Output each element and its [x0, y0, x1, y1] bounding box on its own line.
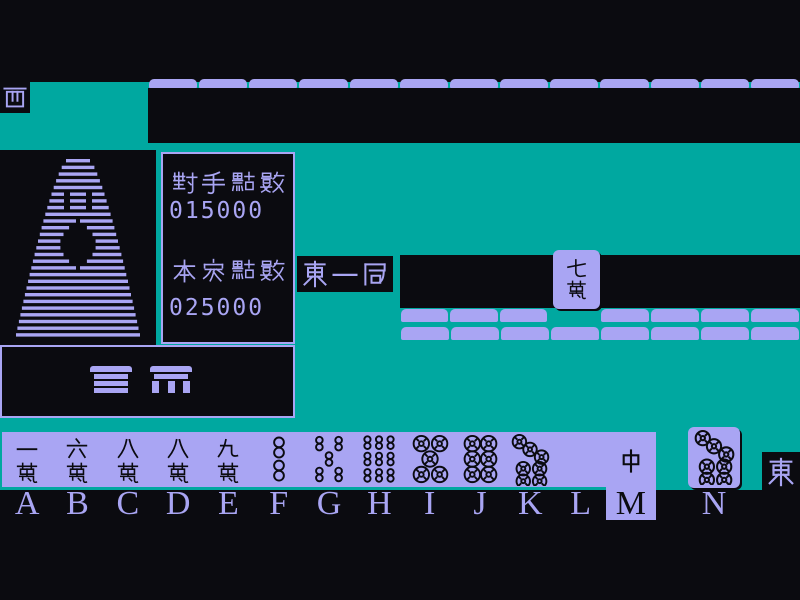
hand-tile-K-7p[interactable]: [505, 432, 555, 487]
hand-tile-C-8m[interactable]: [103, 432, 153, 487]
wall-tile-top: [450, 309, 497, 322]
hand-slot-key-F[interactable]: F: [254, 487, 304, 520]
wall-row-1-right: [600, 309, 800, 322]
game-screen: 015000 025000 ABCDEFGHIJKLM N: [0, 0, 800, 600]
stick-tray-panel: [0, 345, 295, 418]
opponent-tile-back: [148, 79, 198, 143]
wall-tile-top: [751, 327, 799, 340]
opponent-tile-back: [650, 79, 700, 143]
hand-tile-G-5s[interactable]: [304, 432, 354, 487]
opponent-tile-back: [349, 79, 399, 143]
tile-bench-icon: [150, 366, 192, 393]
hand-tile-F-2s[interactable]: [254, 432, 304, 487]
hand-slot-key-G[interactable]: G: [304, 487, 354, 520]
opponent-hand-row: [148, 79, 800, 143]
opponent-tile-back: [750, 79, 800, 143]
score-panel: 015000 025000: [161, 152, 295, 344]
wall-row-2: [400, 327, 800, 340]
opponent-tile-back: [499, 79, 549, 143]
tile-stack-icon: [90, 366, 132, 393]
hand-slot-key-C[interactable]: C: [103, 487, 153, 520]
wall-tile-top: [651, 327, 699, 340]
drawn-tile[interactable]: [688, 427, 740, 488]
player-hand-strip: [2, 432, 656, 487]
opponent-claimed-tile-7man: [553, 250, 600, 309]
hand-key-row: ABCDEFGHIJKLM: [2, 487, 656, 520]
west-wind-glyph: [2, 84, 28, 111]
hand-tile-I-5p[interactable]: [405, 432, 455, 487]
hand-slot-key-H[interactable]: H: [354, 487, 404, 520]
hand-tile-E-9m[interactable]: [203, 432, 253, 487]
tile-pagoda-panel: [0, 150, 156, 345]
opponent-tile-back: [599, 79, 649, 143]
wall-tile-top: [551, 327, 599, 340]
hand-slot-key-I[interactable]: I: [405, 487, 455, 520]
round-indicator: [297, 256, 393, 292]
hand-slot-key-J[interactable]: J: [455, 487, 505, 520]
tile-pagoda-image: [13, 156, 143, 342]
opponent-wind-indicator: [0, 82, 30, 113]
hand-slot-key-K[interactable]: K: [505, 487, 555, 520]
opponent-score-value: 015000: [169, 198, 264, 224]
player-wind-indicator: [762, 452, 800, 492]
player-score-value: 025000: [169, 295, 264, 321]
hand-slot-key-M[interactable]: M: [606, 487, 656, 520]
opponent-tile-back: [399, 79, 449, 143]
opponent-score-label: [171, 170, 285, 196]
hand-tile-D-8m[interactable]: [153, 432, 203, 487]
opponent-tile-back: [449, 79, 499, 143]
wall-tile-top: [401, 309, 448, 322]
hand-slot-key-A[interactable]: A: [2, 487, 52, 520]
wall-tile-top: [601, 327, 649, 340]
opponent-tile-back: [700, 79, 750, 143]
hand-slot-key-B[interactable]: B: [52, 487, 102, 520]
hand-tile-L-haku[interactable]: [555, 432, 605, 487]
wall-tile-top: [751, 309, 799, 322]
opponent-discard-strip: [400, 255, 800, 308]
wall-row-1-left: [400, 309, 548, 322]
hand-slot-key-E[interactable]: E: [203, 487, 253, 520]
wall-tile-top: [651, 309, 699, 322]
hand-slot-key-D[interactable]: D: [153, 487, 203, 520]
wall-tile-top: [401, 327, 449, 340]
opponent-tile-back: [248, 79, 298, 143]
hand-tile-J-6p[interactable]: [455, 432, 505, 487]
hand-tile-B-6m[interactable]: [52, 432, 102, 487]
wall-tile-top: [451, 327, 499, 340]
wall-tile-top: [601, 309, 649, 322]
hand-tile-A-1m[interactable]: [2, 432, 52, 487]
hand-slot-key-L[interactable]: L: [555, 487, 605, 520]
east-wind-glyph: [766, 455, 796, 489]
opponent-tile-back: [198, 79, 248, 143]
player-score-label: [171, 258, 285, 284]
opponent-tile-back: [298, 79, 348, 143]
hand-tile-H-9s[interactable]: [354, 432, 404, 487]
wall-tile-top: [701, 309, 749, 322]
hand-tile-M-chun[interactable]: [606, 432, 656, 487]
hand-slot-key-N[interactable]: N: [688, 487, 740, 520]
wall-tile-top: [501, 327, 549, 340]
opponent-tile-back: [549, 79, 599, 143]
wall-tile-top: [701, 327, 749, 340]
wall-tile-top: [500, 309, 547, 322]
